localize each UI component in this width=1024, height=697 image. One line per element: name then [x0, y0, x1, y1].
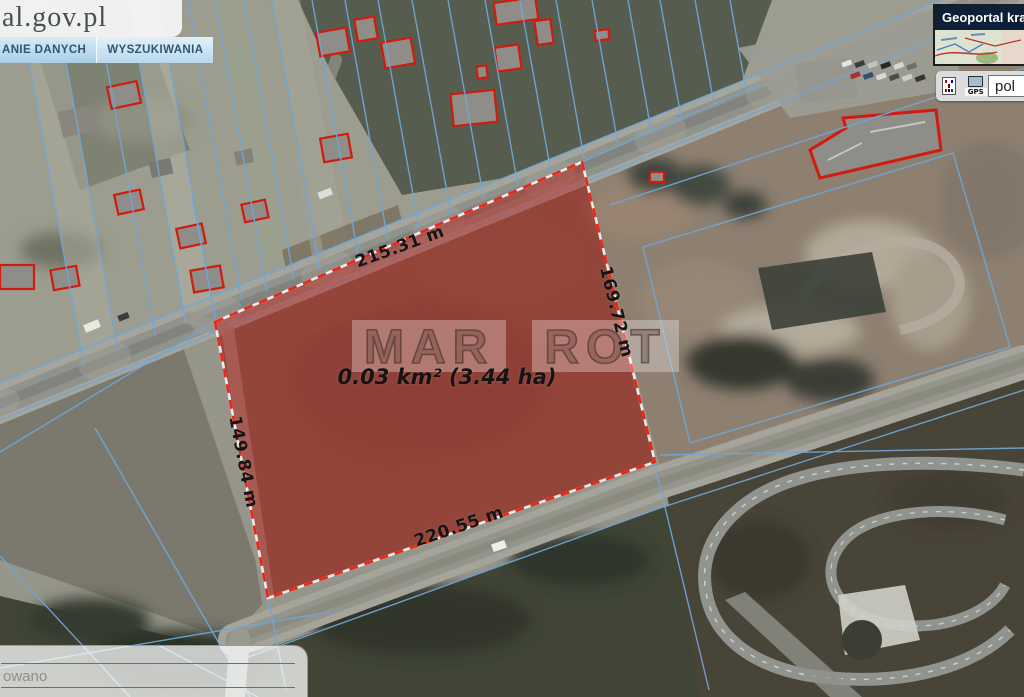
gps-monitor-icon — [968, 76, 983, 87]
overview-minimap[interactable] — [935, 30, 1024, 64]
info-panel: owano — [0, 645, 308, 697]
toolbar-input[interactable] — [988, 75, 1024, 97]
logo-panel: al.gov.pl — [0, 0, 182, 37]
info-panel-row: owano — [3, 668, 47, 685]
info-panel-divider — [1, 687, 295, 688]
parcel-area-label: 0.03 km² (3.44 ha) — [338, 365, 557, 389]
grid-cell — [948, 89, 950, 92]
menu-item-search[interactable]: WYSZUKIWANIA — [96, 37, 213, 63]
gps-button-label: GPS — [965, 88, 987, 96]
grid-cell — [951, 80, 953, 83]
menu-item-data-sharing[interactable]: ANIE DANYCH — [0, 37, 96, 63]
main-menu: ANIE DANYCH WYSZUKIWANIA — [0, 37, 198, 63]
geoportal-app-window: MAR ROT 0.03 km² (3.44 ha) 215.31 m 169.… — [0, 0, 1024, 697]
grid-cell — [948, 80, 950, 83]
grid-cell — [948, 84, 950, 87]
map-toolbar: GPS — [936, 71, 1024, 101]
geoportal-logo: al.gov.pl — [2, 2, 107, 34]
grid-cell — [951, 84, 953, 87]
grid-cell — [945, 89, 947, 92]
gps-button[interactable]: GPS — [965, 76, 979, 96]
overview-map-title: Geoportal kra — [935, 6, 1024, 30]
grid-cell — [945, 80, 947, 83]
info-panel-divider — [1, 663, 295, 664]
layers-grid-button[interactable] — [942, 77, 956, 95]
overview-map-panel[interactable]: Geoportal kra — [933, 4, 1024, 66]
grid-cell — [945, 84, 947, 87]
grid-cell — [951, 89, 953, 92]
